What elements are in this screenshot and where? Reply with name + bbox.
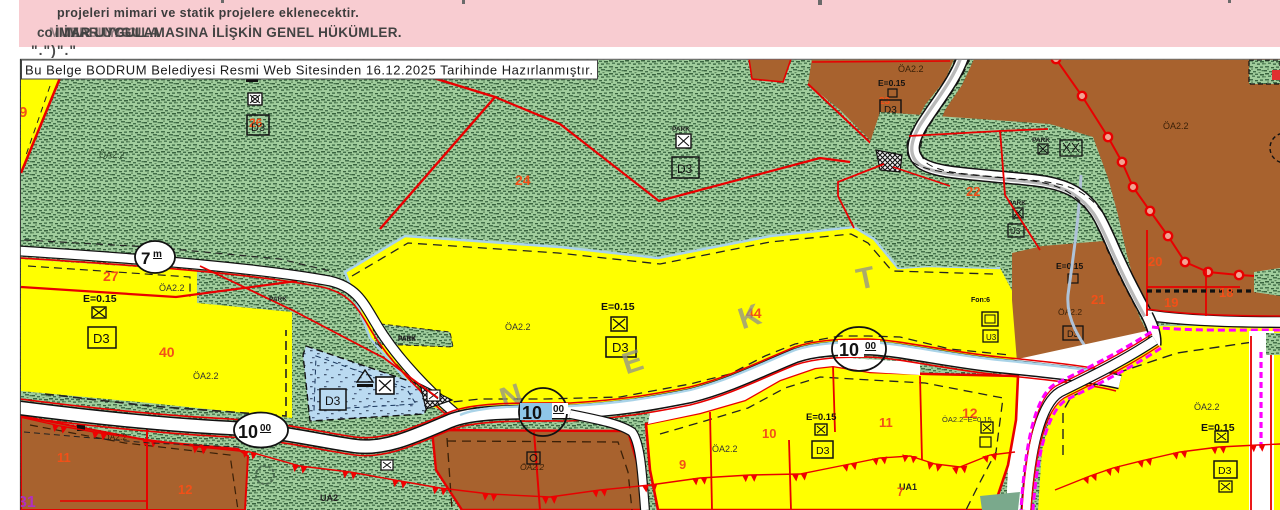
svg-text:E=0.15: E=0.15 — [878, 78, 905, 88]
svg-text:D3: D3 — [677, 162, 693, 176]
svg-text:10: 10 — [238, 422, 258, 442]
svg-text:24: 24 — [515, 172, 531, 188]
svg-text:ÖA2.2: ÖA2.2 — [898, 64, 924, 74]
svg-text:D3: D3 — [251, 122, 265, 134]
svg-text:10: 10 — [522, 403, 542, 423]
svg-text:9: 9 — [679, 457, 686, 472]
svg-text:10: 10 — [762, 426, 776, 441]
svg-text:Fon:6: Fon:6 — [971, 297, 990, 304]
svg-text:12: 12 — [178, 482, 192, 497]
svg-text:PARK: PARK — [269, 296, 287, 303]
svg-text:19: 19 — [1164, 295, 1178, 310]
svg-text:ÖA2.2: ÖA2.2 — [1163, 121, 1189, 131]
svg-text:ÖA2.2: ÖA2.2 — [505, 322, 531, 332]
svg-text:7: 7 — [141, 249, 150, 268]
svg-text:E=0.15: E=0.15 — [806, 412, 837, 423]
svg-text:D3: D3 — [816, 445, 830, 457]
svg-text:D3: D3 — [93, 331, 110, 346]
svg-text:UA2: UA2 — [320, 493, 338, 503]
svg-text:20: 20 — [1148, 254, 1162, 269]
svg-text:D3: D3 — [325, 394, 341, 408]
svg-text:".")".": ".")"." — [31, 42, 77, 58]
svg-text:ÖA2.2: ÖA2.2 — [159, 283, 185, 293]
svg-text:ÖA2.2: ÖA2.2 — [193, 371, 219, 381]
svg-text:D3: D3 — [1218, 465, 1232, 477]
svg-text:18: 18 — [1219, 285, 1233, 300]
svg-text:PARK: PARK — [1032, 137, 1050, 144]
svg-text:00: 00 — [865, 341, 877, 352]
svg-text:U3: U3 — [986, 333, 997, 342]
svg-text:22: 22 — [966, 184, 980, 199]
svg-text:Ü3: Ü3 — [1010, 227, 1021, 236]
svg-text:Bu Belge BODRUM Belediyesi Res: Bu Belge BODRUM Belediyesi Resmi Web Sit… — [25, 63, 593, 78]
svg-text:11: 11 — [879, 415, 893, 430]
svg-text:ÖA2.2: ÖA2.2 — [712, 444, 738, 454]
svg-text:projeleri mimari ve statik pro: projeleri mimari ve statik projelere ekl… — [57, 6, 359, 20]
svg-text:m: m — [153, 249, 162, 260]
svg-text:10: 10 — [839, 340, 859, 360]
svg-text:ÖA2.2: ÖA2.2 — [99, 150, 125, 160]
svg-text:27: 27 — [103, 268, 119, 284]
svg-text:MUERSUYGO: MUERSUYGO — [49, 25, 138, 40]
svg-text:00: 00 — [553, 404, 565, 415]
svg-text:11: 11 — [57, 450, 71, 465]
svg-text:E=0.15: E=0.15 — [83, 293, 117, 305]
svg-text:E=0.15: E=0.15 — [1056, 261, 1083, 271]
svg-text:7: 7 — [897, 485, 904, 499]
svg-text:21: 21 — [1091, 292, 1105, 307]
svg-text:00: 00 — [260, 423, 272, 434]
svg-text:PARK: PARK — [398, 335, 416, 342]
svg-text:E=0.15: E=0.15 — [601, 301, 635, 313]
svg-text:PARK: PARK — [672, 126, 690, 133]
svg-text:ÖA2.2: ÖA2.2 — [1194, 402, 1220, 412]
svg-text:40: 40 — [159, 344, 175, 360]
svg-text:ÖA2.2: ÖA2.2 — [520, 462, 544, 472]
